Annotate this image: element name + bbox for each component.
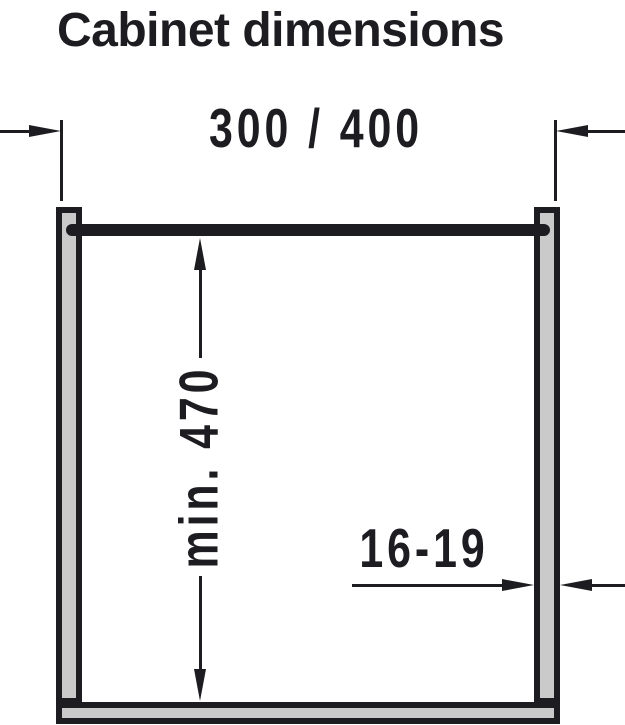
dimension-line-upper	[199, 262, 202, 358]
arrow-right-icon	[502, 579, 534, 591]
cabinet-left-side-panel	[56, 207, 82, 704]
cabinet-bottom-panel	[56, 702, 560, 724]
arrow-right-icon	[29, 125, 61, 137]
arrow-left-icon	[560, 579, 592, 591]
arrow-down-icon	[194, 669, 206, 701]
extension-line-left	[60, 120, 63, 201]
dimension-line-left	[0, 130, 30, 133]
height-dimension-label: min. 470	[172, 366, 227, 569]
width-dimension-label: 300 / 400	[209, 101, 423, 156]
dimension-line-left	[352, 584, 504, 587]
diagram-title: Cabinet dimensions	[57, 3, 504, 58]
cabinet-top-rail	[66, 224, 550, 236]
dimension-line-lower	[199, 576, 202, 671]
cabinet-dimensions-diagram: Cabinet dimensions 300 / 400 min. 470 16…	[0, 0, 625, 725]
cabinet-right-side-panel	[534, 207, 560, 704]
dimension-line-right	[587, 130, 625, 133]
arrow-left-icon	[556, 125, 588, 137]
dimension-line-right	[591, 584, 625, 587]
thickness-dimension-label: 16-19	[359, 521, 488, 576]
